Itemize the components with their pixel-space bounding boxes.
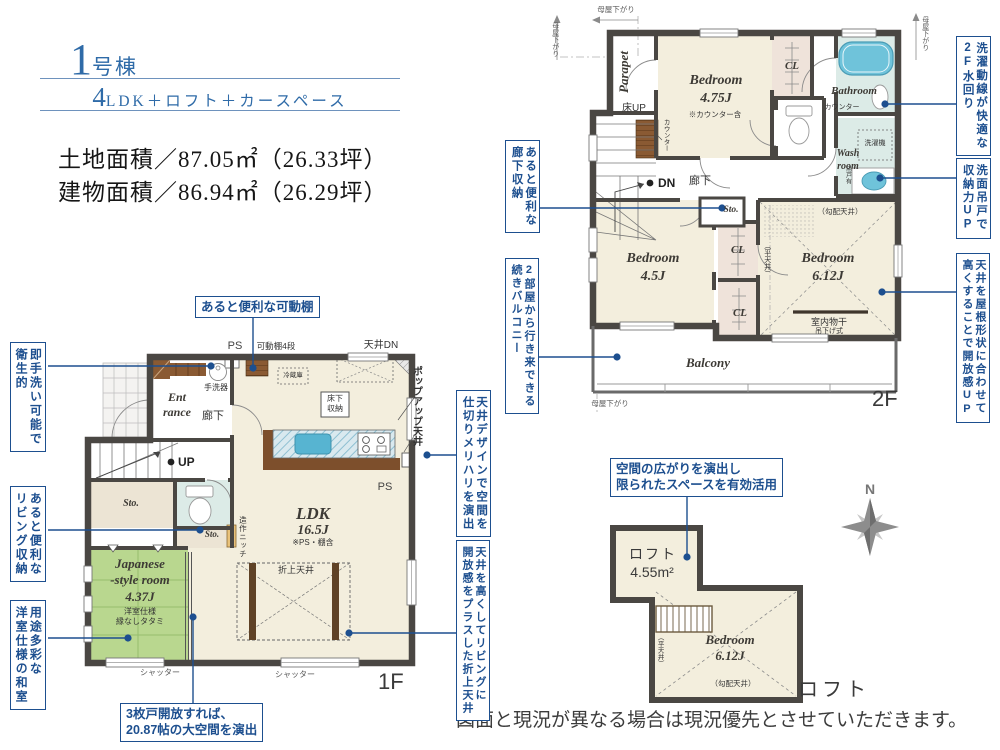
callout-coffered: 天井を高くしてリビングに 開放感をプラスした折上天井 — [456, 540, 490, 721]
label-floor-up: 床UP — [622, 103, 646, 116]
label-ceiling-dn: 天井DN — [364, 340, 398, 353]
label-balcony: Balcony — [686, 355, 730, 371]
label-moya-bottom: 母屋下がり — [591, 399, 629, 408]
label-corridor-2f: 廊下 — [689, 175, 711, 189]
label-bedroom-475-note: ※カウンター含 — [689, 110, 742, 119]
label-loft-bedroom: Bedroom 6.12J — [705, 632, 754, 665]
label-storage-2: Sto. — [205, 529, 219, 540]
compass-rose-icon — [841, 498, 899, 556]
label-sloped-2f: （勾配天井） — [818, 207, 863, 216]
label-handwash: 手洗器 — [204, 383, 228, 393]
label-loft-caption: ロフト — [798, 678, 870, 703]
callout-ceiling-design: 天井デザインで空間を 仕切りメリハリを演出 — [456, 390, 491, 537]
header-rule-bottom — [40, 110, 400, 111]
header-rule-top — [40, 78, 400, 79]
label-cl-mid2: CL — [733, 307, 747, 321]
label-bedroom-475: Bedroom 4.75J — [690, 72, 743, 107]
label-entrance: Ent rance — [163, 390, 191, 420]
label-coffered: 折上天井 — [275, 565, 317, 576]
label-cl-top: CL — [785, 60, 799, 74]
label-shutter-1: シャッター — [140, 668, 180, 678]
label-hanging-door: 吊戸有 — [843, 166, 851, 184]
label-moya-right: 母屋下がり — [920, 16, 929, 51]
label-storage-2f: Sto. — [723, 205, 738, 217]
label-bathroom: Bathroom — [831, 85, 877, 99]
callout-triple-door: 3枚戸開放すれば、 20.87帖の大空間を演出 — [120, 703, 263, 742]
building-number-big: 1 — [70, 35, 92, 84]
label-underfloor: 床下 収納 — [327, 394, 343, 414]
label-up: UP — [178, 455, 195, 470]
label-washer: 洗濯機 — [865, 140, 886, 149]
disclaimer-text: 図面と現況が異なる場合は現況優先とさせていただきます。 — [456, 705, 967, 732]
label-flat-loft: （平天井） — [655, 634, 663, 667]
label-bedroom-45: Bedroom 4.5J — [627, 250, 680, 285]
label-movable-shelf: 可動棚4段 — [257, 341, 296, 352]
label-dn: DN — [658, 176, 675, 191]
callout-loft: 空間の広がりを演出し 限られたスペースを有効活用 — [610, 458, 783, 497]
label-loft-size: 4.55m² — [630, 564, 674, 582]
building-number-suffix: 号棟 — [92, 55, 138, 79]
callout-balcony: 2部屋から行き来できる 続きバルコニー — [505, 258, 539, 414]
plan-type: 4LDK＋ロフト＋カースペース — [40, 82, 400, 113]
label-japanese-note: 洋室仕様 縁なしタタミ — [116, 607, 164, 627]
label-flat-2f: （平天井） — [762, 242, 771, 277]
label-floor-1f: 1F — [378, 668, 404, 696]
label-moya-top: 母屋下がり — [597, 5, 635, 14]
label-floor-2f: 2F — [872, 385, 898, 413]
label-drying: 室内物干 — [811, 317, 847, 328]
callout-vanity: 洗面吊戸で 収納力UP — [956, 158, 991, 239]
label-storage-1: Sto. — [123, 498, 139, 511]
label-ps-top: PS — [228, 340, 243, 354]
compass-north-label: N — [865, 481, 875, 499]
plan-type-rest: LDK＋ロフト＋カースペース — [106, 93, 348, 110]
label-niche: 造作ニッチ — [238, 516, 247, 559]
label-counter-stairs: カウンター — [661, 119, 669, 152]
callout-corridor-storage: あると便利な 廊下収納 — [505, 140, 540, 233]
callout-living-storage: あると便利な リビング収納 — [10, 486, 46, 582]
floor-plan-sheet: 1号棟 4LDK＋ロフト＋カースペース 土地面積／87.05㎡（26.33坪） … — [0, 0, 1000, 750]
label-popup-ceiling: ポップアップ天井 — [409, 366, 422, 446]
label-hanging-type: 吊下げ式 — [815, 328, 843, 337]
label-japanese-room: Japanese -style room 4.37J — [110, 556, 170, 605]
label-ps-right: PS — [378, 481, 393, 495]
label-parapet: Parapet — [616, 51, 632, 93]
label-ldk-note: ※PS・棚含 — [292, 538, 333, 548]
callout-tatami: 用途多彩な 洋室仕様の和室 — [10, 600, 46, 710]
callout-high-ceiling: 天井を屋根形状に合わせて 高くすることで開放感UP — [956, 253, 990, 423]
building-area: 建物面積／86.94㎡（26.29坪） — [58, 173, 388, 207]
label-moya-left: 母屋下がり — [550, 22, 559, 57]
label-loft-name: ロフト — [629, 546, 677, 564]
label-fridge: 冷蔵庫 — [283, 372, 303, 380]
label-shutter-2: シャッター — [275, 670, 315, 680]
label-sloped-loft: （勾配天井） — [711, 679, 756, 688]
label-bedroom-612: Bedroom 6.12J — [802, 250, 855, 285]
callout-movable-shelf: あると便利な可動棚 — [195, 296, 320, 318]
label-ldk-size: 16.5J — [297, 522, 329, 540]
label-cl-mid1: CL — [731, 244, 745, 258]
land-area: 土地面積／87.05㎡（26.33坪） — [58, 140, 388, 174]
callout-handwash: 即手洗い可能で 衛生的 — [10, 342, 46, 452]
label-corridor-1f: 廊下 — [202, 410, 224, 424]
callout-laundry: 洗濯動線が快適な 2F水回り — [956, 36, 991, 156]
plan-type-big: 4 — [92, 82, 106, 112]
label-counter-bath: カウンター — [825, 104, 860, 113]
